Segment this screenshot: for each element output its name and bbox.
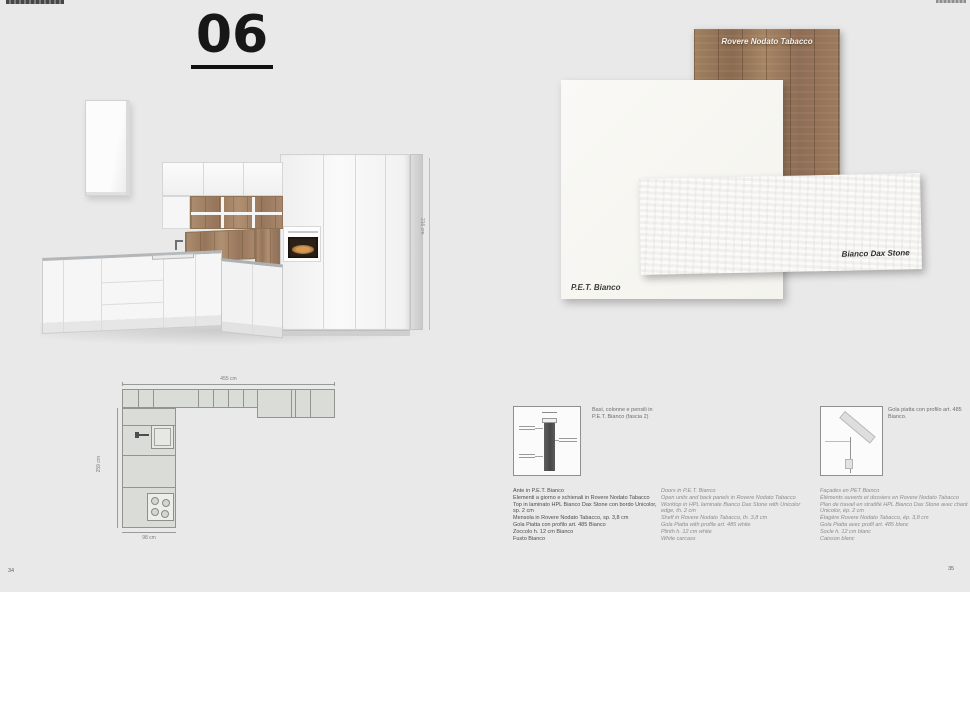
base-cabinet-run-right: [221, 258, 283, 339]
floor-plan: 455 cm: [110, 376, 350, 548]
swatch-label: P.E.T. Bianco: [571, 283, 621, 292]
oven-window: [288, 237, 318, 258]
tall-unit-plinth: [283, 330, 410, 336]
base-cabinet-run-left: [42, 250, 222, 334]
detail-door-section: [544, 423, 555, 471]
spec-line: Ante in P.E.T. Bianco: [513, 488, 663, 495]
spec-line: Caisson blanc: [820, 536, 970, 543]
plan-sink-bowl: [154, 428, 171, 446]
burner: [161, 510, 169, 518]
burner: [151, 508, 159, 516]
spec-column-english: Doors in P.E.T. BiancoOpen units and bac…: [661, 488, 813, 542]
kitchen-render: 216 cm: [40, 88, 440, 358]
door-seam: [252, 264, 253, 334]
plan-tall-units: [257, 389, 335, 418]
built-in-oven: [283, 226, 321, 262]
spec-line: Gola Piatta avec profil art. 485 blanc: [820, 522, 970, 529]
burner: [151, 497, 159, 505]
plan-sink: [151, 425, 174, 449]
detail-diagram-gola-profile: [820, 406, 883, 476]
detail-leader-line: [535, 428, 543, 429]
detail-caption-right: Gola piatta con profilo art. 485 Bianco.: [888, 407, 962, 420]
plan-seam: [123, 487, 175, 488]
detail-caption-left: Basi, colonne e pensili in P.E.T. Bianco…: [592, 407, 666, 420]
plan-seam: [228, 390, 229, 407]
door-seam: [243, 163, 244, 195]
door-seam: [195, 254, 196, 326]
door-seam: [163, 256, 164, 328]
door-seam: [385, 155, 386, 329]
plan-seam: [295, 390, 296, 417]
spec-line: Open units and back panels in Rovere Nod…: [661, 495, 813, 502]
detail-diagram-column-section: [513, 406, 581, 476]
shelf-divider: [252, 197, 255, 228]
spec-line: Worktop in HPL laminate Bianco Dax Stone…: [661, 502, 813, 516]
spec-line: Mensola in Rovere Nodato Tabacco, sp. 3,…: [513, 515, 663, 522]
wood-open-shelves: [190, 196, 283, 229]
spec-line: Shelf in Rovere Nodato Tabacco, th. 3,8 …: [661, 515, 813, 522]
header-text-left-cropped: [6, 0, 64, 4]
catalog-spread: 06: [0, 0, 970, 728]
plan-faucet-base: [135, 432, 139, 438]
drawer-seam: [101, 280, 163, 284]
spec-line: Fusto Bianco: [513, 536, 663, 543]
spec-line: Façades en PET Bianco: [820, 488, 970, 495]
spec-column-french: Façades en PET BiancoÉléments ouverts et…: [820, 488, 970, 542]
plan-left-cabinet-run: [122, 408, 176, 528]
detail-dimension-line: [542, 412, 557, 413]
spec-column-italian: Ante in P.E.T. BiancoElementi a giorno e…: [513, 488, 663, 542]
dimension-line: [122, 384, 335, 385]
plan-seam: [243, 390, 244, 407]
plan-seam: [310, 390, 311, 417]
plan-seam: [123, 455, 175, 456]
plan-depth-dimension: 259 cm: [96, 456, 106, 472]
white-wall-cabinet-left: [162, 196, 190, 229]
detail-micro-label: [559, 438, 577, 442]
composition-number: 06: [191, 6, 273, 69]
door-seam: [101, 258, 102, 330]
profile-line: [825, 441, 850, 442]
header-text-right-cropped: [936, 0, 966, 3]
tall-unit-side-panel: [410, 154, 423, 330]
spec-line: White carcass: [661, 536, 813, 543]
plan-seam: [138, 390, 139, 407]
white-wall-cabinets: [162, 162, 283, 196]
spec-line: Zoccolo h. 12 cm Bianco: [513, 529, 663, 536]
dimension-line: [122, 532, 176, 533]
detail-micro-label: [519, 454, 535, 458]
burner: [162, 499, 170, 507]
plan-return-dimension: 98 cm: [122, 535, 176, 541]
oven-handle: [288, 231, 318, 233]
shelf-divider: [221, 197, 224, 228]
swatch-label: Rovere Nodato Tabacco: [694, 37, 840, 46]
spec-line: Top in laminato HPL Bianco Dax Stone con…: [513, 502, 663, 516]
spec-line: Elementi a giorno e schienali in Rovere …: [513, 495, 663, 502]
door-seam: [203, 163, 204, 195]
door-seam: [355, 155, 356, 329]
plan-cooktop: [147, 493, 174, 521]
swatch-label: Bianco Dax Stone: [842, 248, 910, 258]
spec-line: Gola Piatta with profile art. 485 white: [661, 522, 813, 529]
plan-seam: [213, 390, 214, 407]
page-number-left: 34: [8, 568, 14, 574]
drawer-seam: [101, 302, 163, 306]
plan-width-dimension: 455 cm: [122, 376, 335, 382]
oven-food-glow: [292, 245, 314, 254]
floating-wall-cabinet: [85, 100, 130, 196]
detail-leader-line: [535, 456, 543, 457]
gola-profile-sketch: [839, 411, 875, 444]
faucet-spout: [175, 240, 183, 242]
spec-line: Socle h. 12 cm blanc: [820, 529, 970, 536]
spec-line: Gola Piatta con profilo art. 485 Bianco: [513, 522, 663, 529]
dimension-tick: [334, 382, 335, 386]
plan-seam: [198, 390, 199, 407]
plan-seam: [291, 390, 292, 417]
height-dimension-line: [429, 158, 430, 330]
spec-line: Étagère Rovere Nodato Tabacco, ép. 3,8 c…: [820, 515, 970, 522]
height-dimension-label: 216 cm: [419, 218, 425, 234]
detail-leader-line: [555, 440, 559, 441]
catalog-page-background: 06: [0, 0, 970, 592]
dimension-line: [117, 408, 118, 528]
shelf: [191, 212, 282, 215]
plan-seam: [153, 390, 154, 407]
swatch-bianco-dax-stone: Bianco Dax Stone: [639, 173, 922, 275]
page-number-right: 35: [948, 566, 954, 572]
profile-foot: [845, 459, 853, 469]
spec-line: Plinth h. 12 cm white: [661, 529, 813, 536]
detail-micro-label: [519, 426, 535, 430]
spec-line: Plan de travail en stratifié HPL Bianco …: [820, 502, 970, 516]
dimension-tick: [122, 382, 123, 386]
spec-line: Doors in P.E.T. Bianco: [661, 488, 813, 495]
door-seam: [63, 260, 64, 332]
spec-line: Éléments ouverts et dossiers en Rovere N…: [820, 495, 970, 502]
door-seam: [323, 155, 324, 329]
